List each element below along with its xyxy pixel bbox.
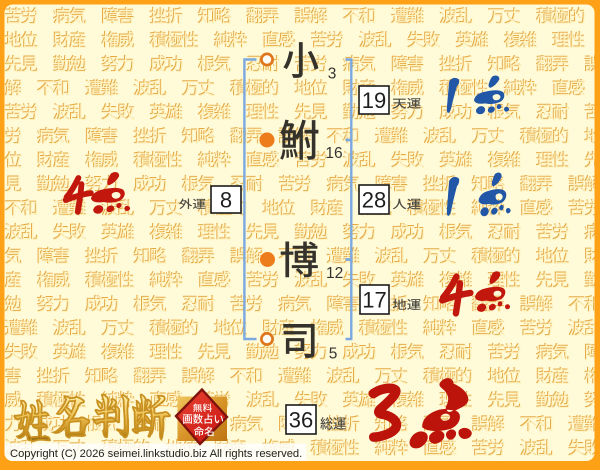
svg-text:12: 12 bbox=[326, 265, 343, 282]
svg-text:17: 17 bbox=[362, 287, 386, 312]
svg-text:8: 8 bbox=[220, 187, 232, 212]
svg-text:Copyright (C) 2026 seimei.link: Copyright (C) 2026 seimei.linkstudio.biz… bbox=[10, 448, 302, 460]
svg-text:36: 36 bbox=[289, 407, 313, 432]
svg-text:19: 19 bbox=[362, 88, 386, 113]
svg-text:16: 16 bbox=[325, 145, 342, 162]
svg-text:28: 28 bbox=[362, 187, 386, 212]
svg-text:3: 3 bbox=[328, 66, 337, 83]
svg-text:5: 5 bbox=[329, 346, 338, 363]
